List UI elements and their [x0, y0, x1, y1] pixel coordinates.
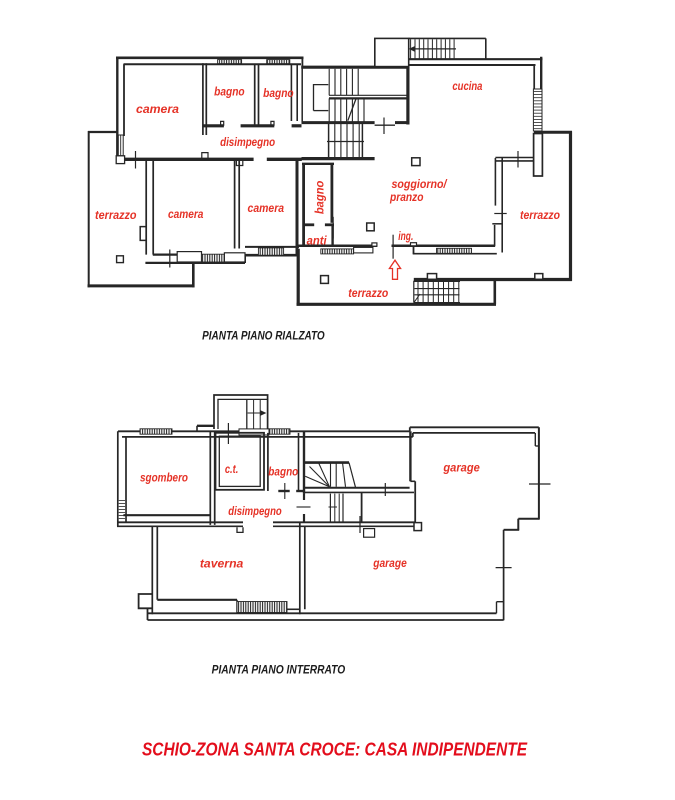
svg-text:camera: camera [248, 203, 285, 215]
svg-text:PIANTA PIANO INTERRATO: PIANTA PIANO INTERRATO [212, 664, 346, 677]
svg-text:terrazzo: terrazzo [95, 210, 137, 222]
svg-text:pranzo: pranzo [389, 192, 423, 204]
svg-text:camera: camera [136, 104, 180, 116]
svg-text:camera: camera [168, 209, 204, 221]
svg-text:SCHIO-ZONA SANTA CROCE: CASA I: SCHIO-ZONA SANTA CROCE: CASA INDIPENDENT… [142, 738, 527, 759]
svg-text:ing.: ing. [398, 231, 413, 243]
svg-text:bagno: bagno [268, 467, 298, 479]
svg-text:disimpegno: disimpegno [228, 506, 282, 518]
svg-text:terrazzo: terrazzo [520, 210, 560, 222]
svg-text:sgombero: sgombero [140, 473, 188, 485]
svg-text:anti: anti [307, 236, 328, 248]
svg-text:terrazzo: terrazzo [348, 288, 388, 300]
svg-text:disimpegno: disimpegno [220, 137, 275, 149]
svg-text:PIANTA PIANO RIALZATO: PIANTA PIANO RIALZATO [202, 329, 325, 342]
svg-text:bagno: bagno [214, 87, 245, 99]
svg-text:bagno: bagno [315, 181, 327, 215]
svg-text:garage: garage [442, 463, 480, 475]
svg-text:bagno: bagno [263, 88, 294, 100]
svg-text:soggiorno/: soggiorno/ [392, 179, 449, 191]
svg-text:cucina: cucina [452, 81, 482, 93]
svg-text:c.t.: c.t. [225, 464, 239, 476]
svg-text:taverna: taverna [200, 559, 244, 571]
svg-text:garage: garage [372, 558, 407, 570]
